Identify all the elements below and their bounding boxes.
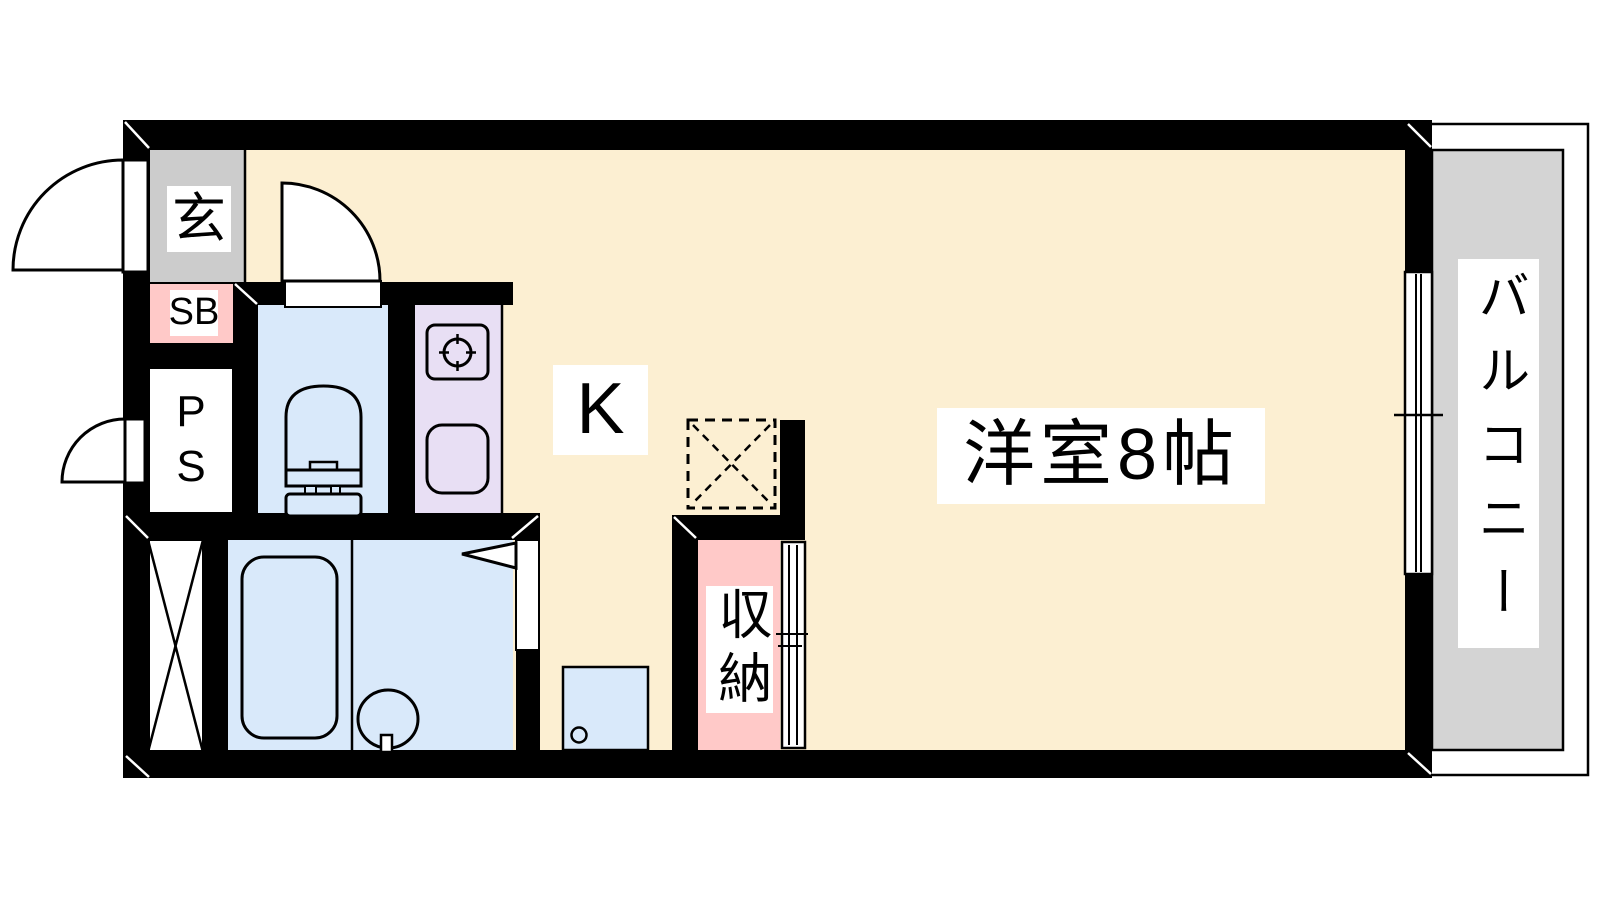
wall-fridge-nook xyxy=(780,420,805,515)
balcony-label: バルコニー xyxy=(1458,259,1539,648)
floor-plan: 玄 SB PS K 収納 洋室8帖 バルコニー xyxy=(0,0,1600,900)
western-room-label: 洋室8帖 xyxy=(937,408,1265,504)
bathtub-icon xyxy=(242,557,337,738)
entrance-door-swing-icon xyxy=(13,160,148,272)
washing-machine-pan-icon xyxy=(563,667,648,750)
shoe-box-label: SB xyxy=(170,290,218,336)
wall-shaft-right xyxy=(203,540,228,750)
closet-sliding-door-icon xyxy=(776,542,808,748)
shaft-box-icon xyxy=(148,540,203,752)
wall-top xyxy=(123,120,1432,150)
kitchen-sink-icon xyxy=(427,425,488,493)
wall-toilet-left xyxy=(233,282,258,540)
wall-bottom xyxy=(123,750,1432,778)
kitchen-label: K xyxy=(553,365,648,455)
pipe-space-door-swing-icon xyxy=(62,419,145,483)
wall-toilet-kitchen xyxy=(388,282,415,540)
toilet-icon xyxy=(286,386,361,516)
wall-sb-ps xyxy=(148,343,233,368)
stove-burner-icon xyxy=(427,325,488,379)
closet-label: 収納 xyxy=(706,586,773,713)
wall-washroom-door-jamb xyxy=(516,650,540,750)
floor-plan-drawing xyxy=(0,0,1600,900)
wall-closet-left xyxy=(672,540,698,750)
entrance-label: 玄 xyxy=(167,186,231,252)
pipe-space-label: PS xyxy=(163,383,218,501)
wall-closet-top xyxy=(672,515,805,540)
